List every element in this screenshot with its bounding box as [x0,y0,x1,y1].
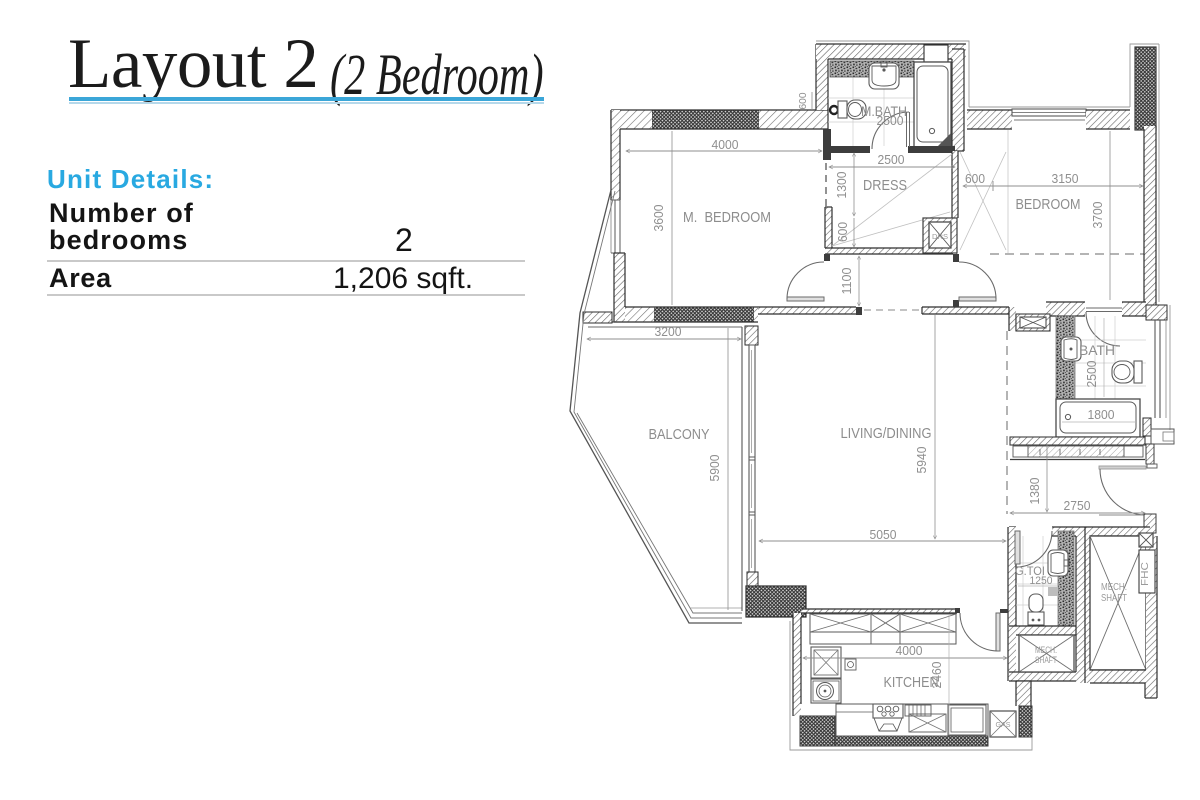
svg-text:1300: 1300 [835,171,849,198]
svg-text:DRESS: DRESS [863,177,907,194]
svg-text:KITCHEN: KITCHEN [884,674,939,691]
svg-text:1100: 1100 [840,267,854,294]
svg-text:1380: 1380 [1028,477,1042,504]
svg-text:2750: 2750 [1064,499,1091,513]
svg-text:5050: 5050 [870,528,897,542]
svg-text:SHAFT: SHAFT [1101,593,1127,604]
svg-text:BALCONY: BALCONY [649,426,710,443]
svg-text:2500: 2500 [877,114,904,128]
svg-text:3600: 3600 [652,204,666,231]
svg-text:4000: 4000 [712,138,739,152]
svg-text:3150: 3150 [1052,172,1079,186]
svg-text:BEDROOM: BEDROOM [1016,196,1081,213]
svg-text:SHAFT: SHAFT [1035,655,1057,665]
svg-text:2500: 2500 [878,153,905,167]
svg-text:600: 600 [798,92,809,109]
svg-text:BATH: BATH [1079,342,1115,358]
svg-text:M. BEDROOM: M. BEDROOM [683,209,771,226]
svg-text:3200: 3200 [655,325,682,339]
svg-text:MECH.: MECH. [1035,645,1057,655]
svg-text:600: 600 [965,172,985,186]
svg-text:2500: 2500 [1085,360,1099,387]
svg-text:4000: 4000 [896,644,923,658]
svg-text:600: 600 [836,222,850,242]
svg-text:1800: 1800 [1088,408,1115,422]
svg-text:LIVING/DINING: LIVING/DINING [841,425,932,442]
svg-text:5900: 5900 [708,454,722,481]
svg-text:1250: 1250 [1030,575,1053,587]
svg-text:3700: 3700 [1091,201,1105,228]
svg-text:GAS: GAS [996,720,1011,729]
svg-text:MECH.: MECH. [1101,582,1127,593]
svg-text:FHC: FHC [1140,562,1151,586]
svg-text:5940: 5940 [915,446,929,473]
svg-text:DRS: DRS [932,232,948,241]
